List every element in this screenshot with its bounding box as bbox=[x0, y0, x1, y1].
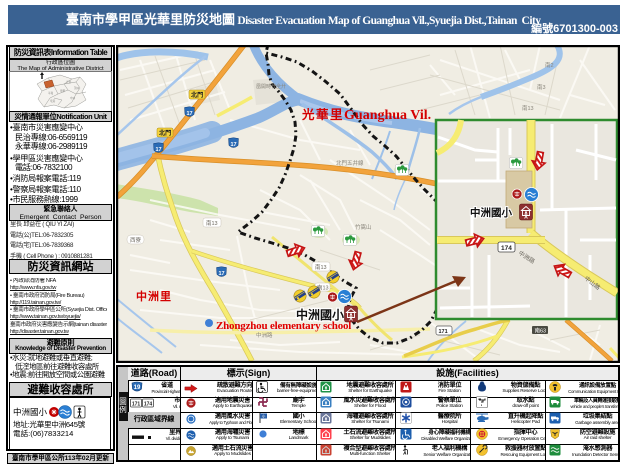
svg-text:中洲路: 中洲路 bbox=[256, 331, 273, 339]
svg-text:中洲里: 中洲里 bbox=[136, 289, 172, 303]
svg-text:北門: 北門 bbox=[159, 129, 171, 137]
svg-text:凰開時代全廾: 凰開時代全廾 bbox=[256, 83, 286, 90]
svg-text:17: 17 bbox=[155, 147, 161, 153]
svg-text:平和: 平和 bbox=[48, 91, 54, 95]
svg-text:宅港: 宅港 bbox=[50, 99, 56, 103]
svg-text:南13: 南13 bbox=[315, 263, 327, 271]
svg-text:南2: 南2 bbox=[545, 61, 554, 69]
svg-text:西寮: 西寮 bbox=[130, 236, 142, 244]
svg-text:北門: 北門 bbox=[191, 91, 203, 99]
svg-text:Zhongzhou elementary school: Zhongzhou elementary school bbox=[216, 320, 351, 332]
svg-text:171: 171 bbox=[439, 329, 448, 335]
svg-text:竹嵩山: 竹嵩山 bbox=[355, 223, 372, 231]
svg-text:南13: 南13 bbox=[206, 219, 218, 227]
svg-text:南13: 南13 bbox=[522, 104, 534, 112]
svg-text:中洲: 中洲 bbox=[70, 96, 76, 100]
svg-text:光華里Guanghua Vil.: 光華里Guanghua Vil. bbox=[301, 107, 431, 123]
svg-text:南63: 南63 bbox=[535, 327, 547, 335]
svg-text:南3: 南3 bbox=[537, 83, 546, 91]
svg-text:174: 174 bbox=[501, 245, 512, 252]
svg-text:中洲國小: 中洲國小 bbox=[470, 206, 512, 219]
svg-text:學甲: 學甲 bbox=[60, 89, 66, 93]
svg-text:北門五井線: 北門五井線 bbox=[336, 159, 364, 167]
svg-text:光華: 光華 bbox=[66, 80, 72, 84]
svg-text:頂洲: 頂洲 bbox=[74, 86, 80, 90]
